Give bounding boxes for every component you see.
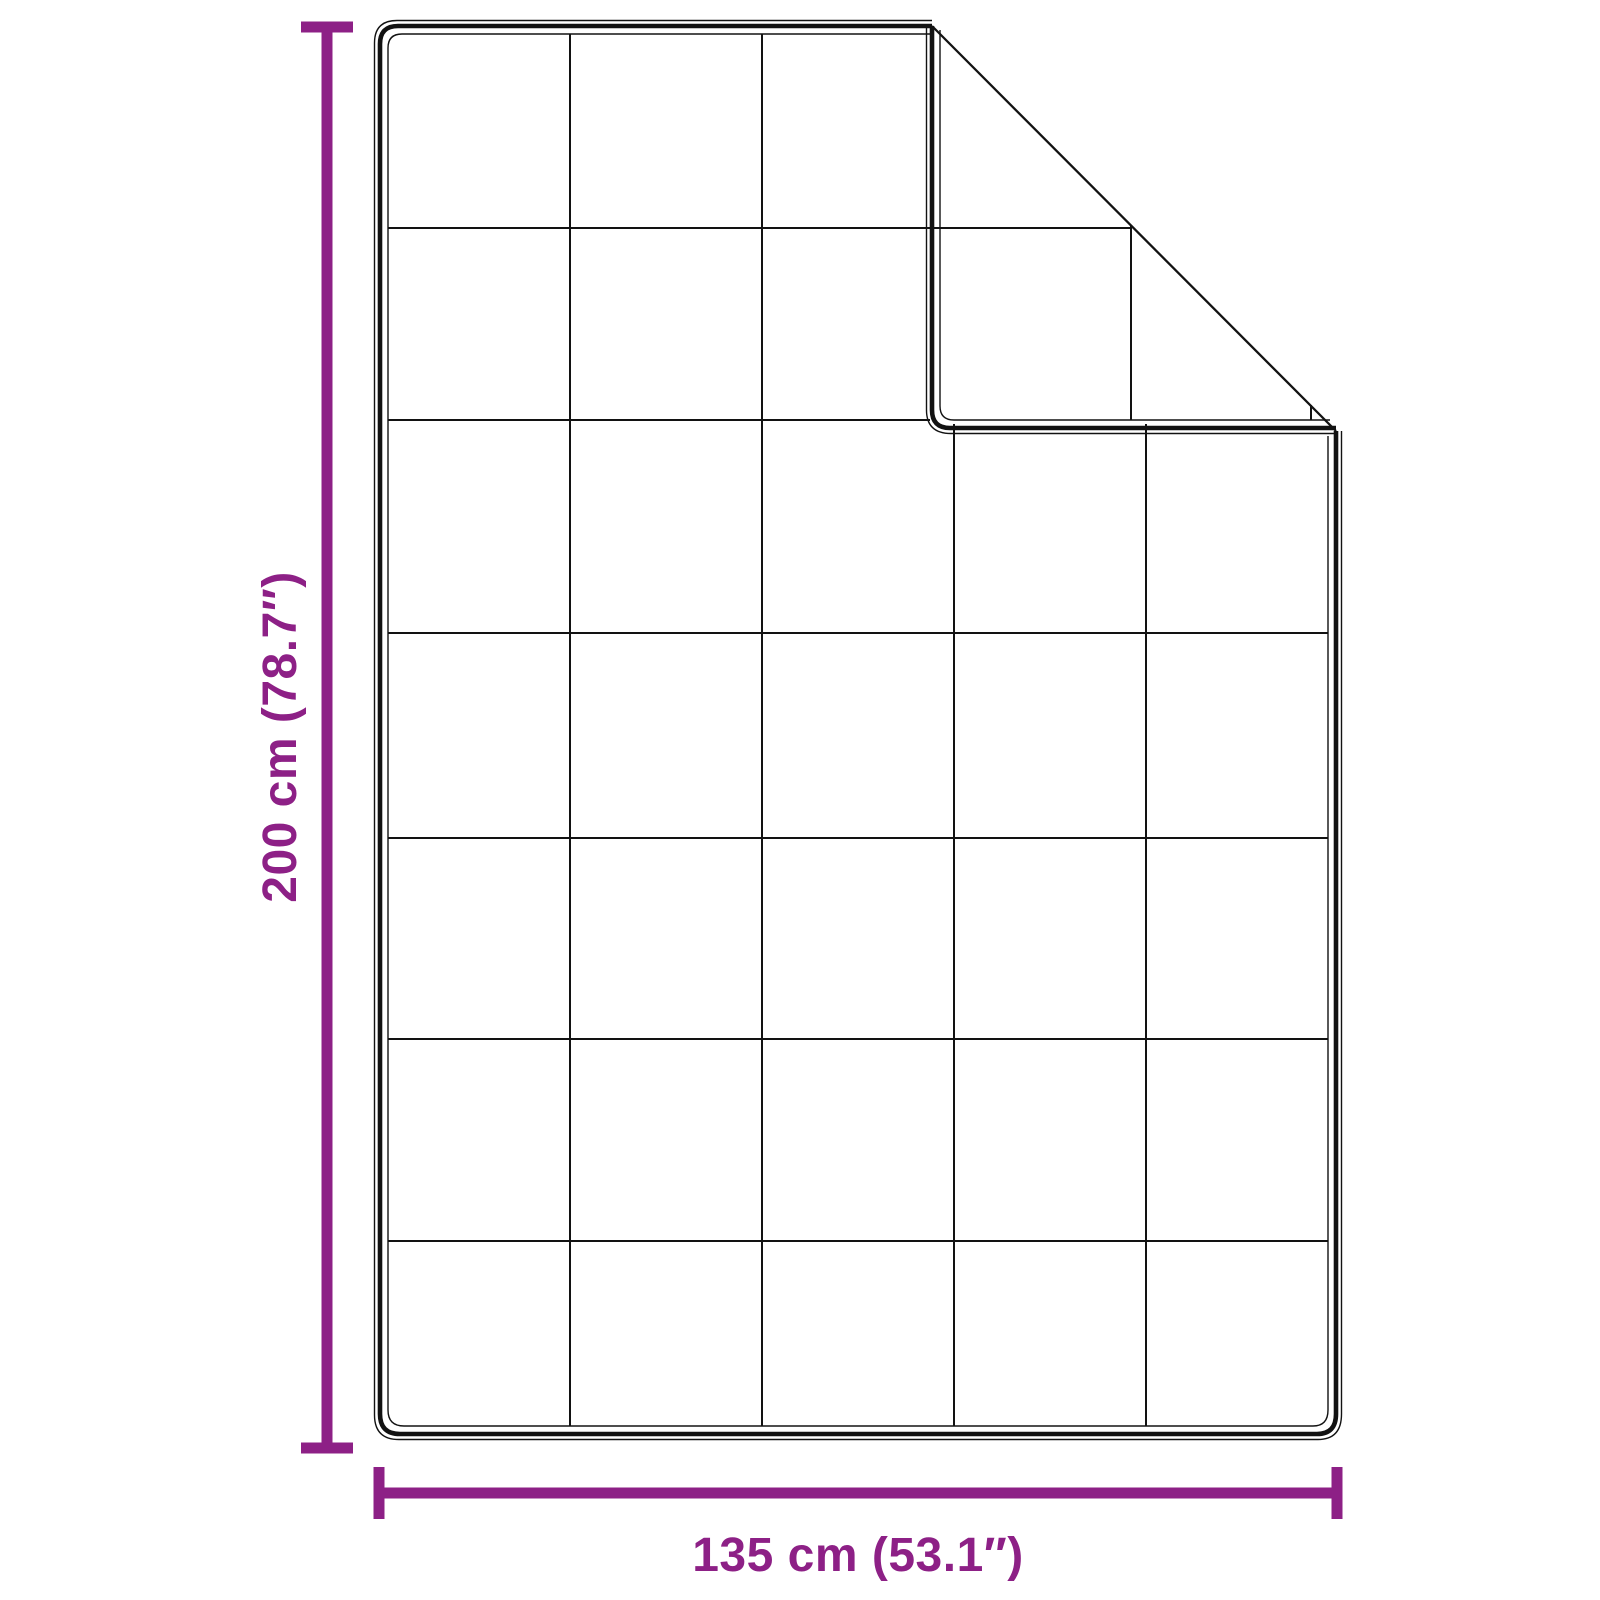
- fold-flap-quilt-lines: [1131, 226, 1311, 420]
- height-dimension-label: 200 cm (78.7″): [256, 587, 304, 887]
- width-dimension-label: 135 cm (53.1″): [558, 1527, 1158, 1583]
- blanket-outline: [380, 26, 1336, 1434]
- height-dimension-line: [301, 27, 353, 1448]
- quilt-grid-horizontal-lines: [388, 228, 1328, 1241]
- blanket-outline-inner-hairline: [388, 34, 1328, 1426]
- fold-flap-inner-hairline: [940, 30, 1330, 420]
- blanket-line-art: [0, 0, 1600, 1600]
- quilt-grid-vertical-lines: [570, 34, 1146, 1426]
- dimension-diagram: 200 cm (78.7″) 135 cm (53.1″): [0, 0, 1600, 1600]
- blanket-outline-outer-hairline: [375, 21, 1342, 1440]
- width-dimension-line: [379, 1467, 1337, 1519]
